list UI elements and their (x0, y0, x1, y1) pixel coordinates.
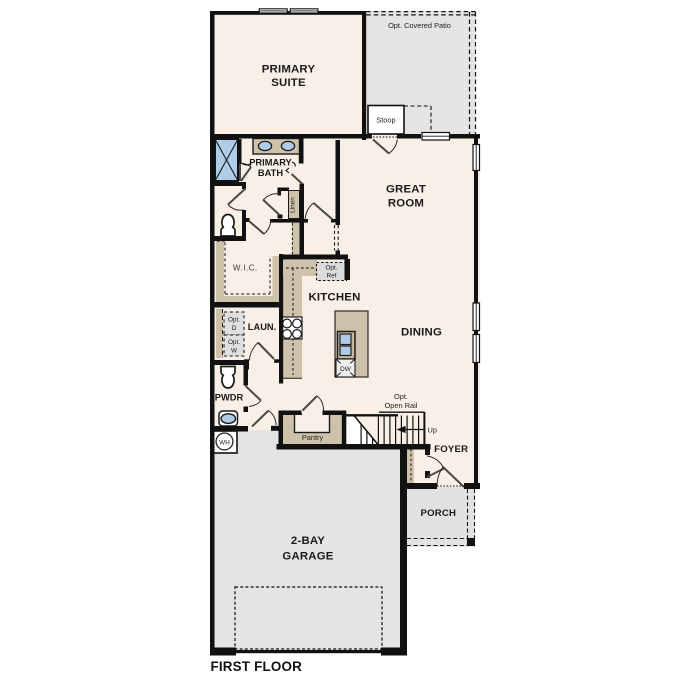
svg-text:GARAGE: GARAGE (282, 551, 333, 563)
svg-text:Opt.: Opt. (228, 339, 240, 346)
svg-text:W: W (231, 348, 238, 355)
svg-text:Opt. Covered Patio: Opt. Covered Patio (388, 21, 451, 30)
svg-text:Opt.: Opt. (325, 265, 337, 272)
svg-text:ROOM: ROOM (388, 197, 424, 209)
svg-text:DINING: DINING (401, 327, 442, 339)
svg-text:PWDR: PWDR (215, 393, 244, 403)
svg-text:KITCHEN: KITCHEN (308, 292, 360, 304)
svg-text:SUITE: SUITE (271, 77, 306, 89)
svg-text:Up: Up (428, 426, 437, 435)
svg-text:2-BAY: 2-BAY (291, 535, 325, 547)
svg-text:FIRST FLOOR: FIRST FLOOR (211, 659, 303, 674)
svg-text:Ref: Ref (327, 273, 337, 280)
svg-text:Opt.: Opt. (228, 317, 240, 324)
svg-text:LAUN.: LAUN. (248, 322, 276, 332)
svg-text:Pantry: Pantry (302, 433, 324, 442)
svg-text:GREAT: GREAT (386, 184, 426, 196)
svg-text:WH: WH (219, 440, 230, 447)
svg-text:DW: DW (340, 366, 352, 373)
svg-text:Open Rail: Open Rail (385, 401, 418, 410)
svg-text:Linen: Linen (290, 197, 297, 213)
svg-text:BATH: BATH (258, 168, 283, 178)
svg-text:W.I.C.: W.I.C. (233, 264, 258, 273)
svg-text:PRIMARY: PRIMARY (249, 158, 292, 168)
svg-text:Stoop: Stoop (376, 116, 395, 125)
svg-text:D: D (232, 325, 237, 332)
svg-text:PORCH: PORCH (420, 508, 456, 519)
svg-text:Opt.: Opt. (394, 392, 408, 401)
svg-text:PRIMARY: PRIMARY (262, 64, 316, 76)
svg-text:FOYER: FOYER (434, 444, 468, 455)
